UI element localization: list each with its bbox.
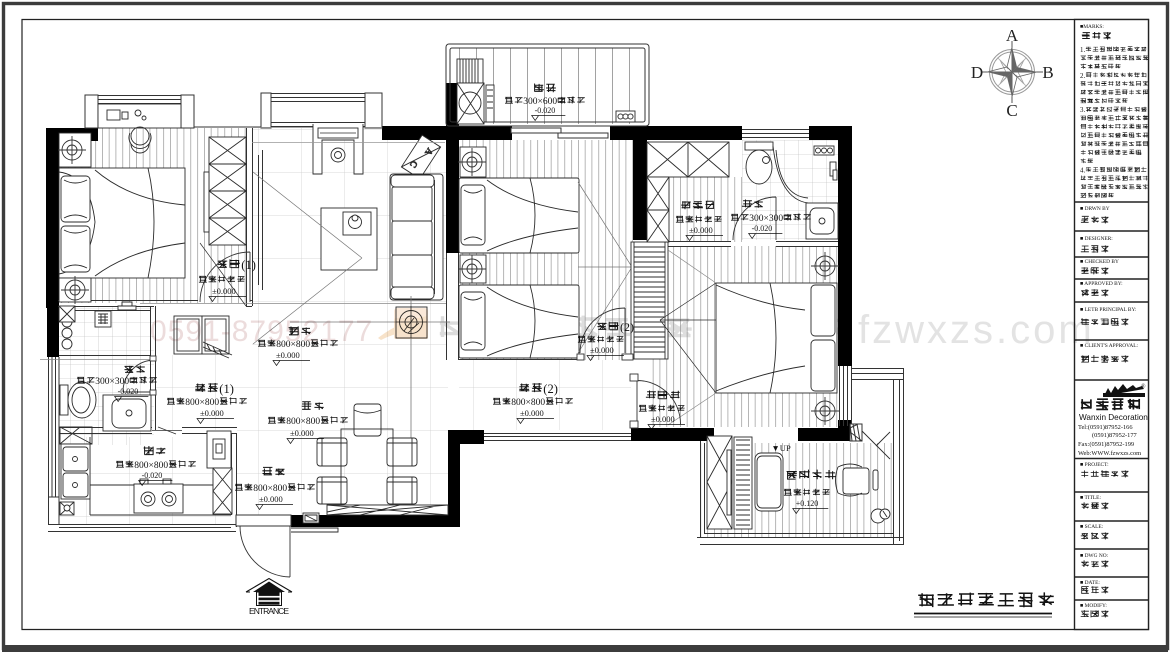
svg-text:±0.000: ±0.000: [276, 350, 300, 360]
svg-text:■ DESIGNER:: ■ DESIGNER:: [1080, 236, 1113, 242]
svg-text:-0.020: -0.020: [142, 471, 163, 480]
svg-text:®: ®: [1141, 383, 1146, 390]
svg-text:1.: 1.: [1080, 47, 1085, 54]
svg-text:A: A: [1006, 26, 1019, 45]
svg-text:800×800: 800×800: [286, 417, 320, 427]
svg-text:■ TITLE:: ■ TITLE:: [1080, 495, 1101, 501]
svg-text:800×800: 800×800: [253, 484, 287, 494]
svg-text:800×800: 800×800: [511, 398, 545, 408]
svg-text:-0.020: -0.020: [535, 106, 556, 115]
svg-text:■ APPROVED BY:: ■ APPROVED BY:: [1080, 281, 1123, 287]
svg-text:300×300: 300×300: [95, 377, 129, 387]
svg-text:▼UP: ▼UP: [771, 443, 791, 453]
svg-text:±0.000: ±0.000: [520, 408, 544, 418]
svg-text:±0.000: ±0.000: [590, 345, 614, 355]
svg-text:800×800: 800×800: [134, 461, 168, 471]
svg-text:(0591)87952-177: (0591)87952-177: [1092, 432, 1138, 439]
svg-text:C: C: [1006, 101, 1017, 120]
svg-text:3.: 3.: [1080, 107, 1085, 114]
svg-text:■ DWG NO:: ■ DWG NO:: [1080, 553, 1109, 559]
svg-text:4.: 4.: [1080, 167, 1085, 174]
svg-text:D: D: [971, 63, 983, 82]
svg-text:fzwxzs.com: fzwxzs.com: [858, 308, 1095, 352]
svg-text:300×300: 300×300: [749, 214, 783, 224]
svg-text:■ DATE:: ■ DATE:: [1080, 580, 1100, 586]
svg-text:-0.020: -0.020: [118, 387, 139, 396]
svg-text:■MARKS:: ■MARKS:: [1080, 24, 1104, 30]
svg-text:0591-87952177: 0591-87952177: [150, 315, 373, 348]
svg-text:±0.000: ±0.000: [651, 414, 675, 424]
svg-text:Wanxin Decoration: Wanxin Decoration: [1079, 413, 1148, 422]
svg-text:■ CLIENT'S APPROVAL:: ■ CLIENT'S APPROVAL:: [1080, 343, 1139, 349]
svg-text:Fax:(0591)87952-199: Fax:(0591)87952-199: [1078, 441, 1134, 448]
svg-text:■ CHECKED BY: ■ CHECKED BY: [1080, 259, 1119, 265]
svg-text:2.: 2.: [1080, 73, 1085, 80]
svg-text:(1): (1): [219, 382, 234, 396]
svg-text:Tel:(0591)87952-166: Tel:(0591)87952-166: [1078, 424, 1133, 431]
svg-text:ENTRANCE: ENTRANCE: [249, 606, 289, 616]
svg-text:■ MODIFY:: ■ MODIFY:: [1080, 603, 1107, 609]
svg-text:■ DRWN BY: ■ DRWN BY: [1080, 206, 1110, 212]
svg-text:■ LETB PRINCIPAL BY:: ■ LETB PRINCIPAL BY:: [1080, 307, 1137, 313]
svg-text:+0.120: +0.120: [796, 499, 819, 508]
svg-text:■ SCALE:: ■ SCALE:: [1080, 524, 1104, 530]
svg-text:(2): (2): [543, 382, 558, 396]
svg-text:(2): (2): [620, 320, 634, 334]
svg-text:±0.000: ±0.000: [200, 408, 224, 418]
svg-text:800×800: 800×800: [276, 340, 310, 350]
svg-text:800×800: 800×800: [185, 398, 219, 408]
svg-text:±0.000: ±0.000: [290, 428, 314, 438]
svg-text:-0.020: -0.020: [752, 224, 773, 233]
svg-text:Web:WWW.fzwxzs.com: Web:WWW.fzwxzs.com: [1078, 450, 1141, 457]
svg-text:■ PROJECT:: ■ PROJECT:: [1080, 462, 1109, 468]
svg-text:±0.000: ±0.000: [689, 225, 713, 235]
svg-text:B: B: [1042, 63, 1053, 82]
svg-text:±0.000: ±0.000: [212, 286, 236, 296]
svg-text:±0.000: ±0.000: [259, 494, 283, 504]
svg-text:(1): (1): [241, 258, 256, 272]
